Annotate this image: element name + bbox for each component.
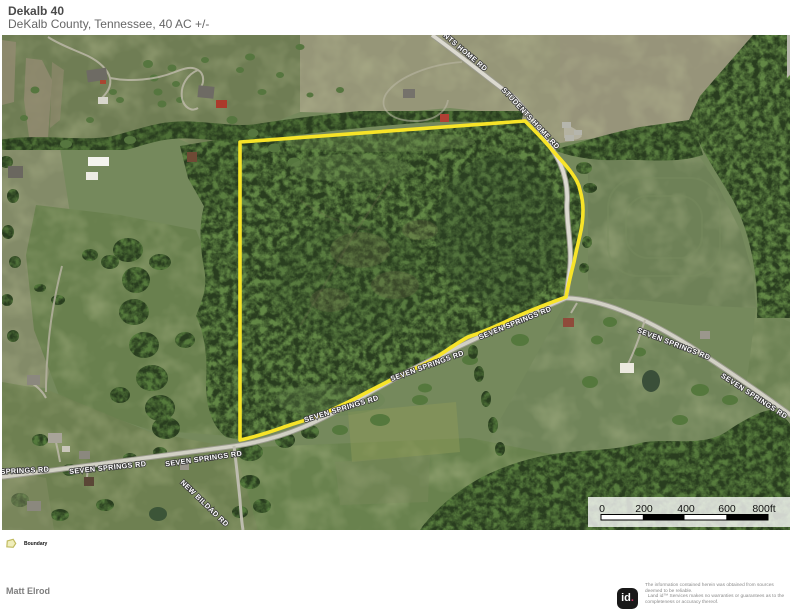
svg-text:600: 600 (718, 503, 736, 515)
svg-text:0: 0 (599, 503, 605, 515)
svg-text:200: 200 (635, 503, 653, 515)
svg-text:800ft: 800ft (752, 503, 775, 515)
svg-text:400: 400 (677, 503, 695, 515)
